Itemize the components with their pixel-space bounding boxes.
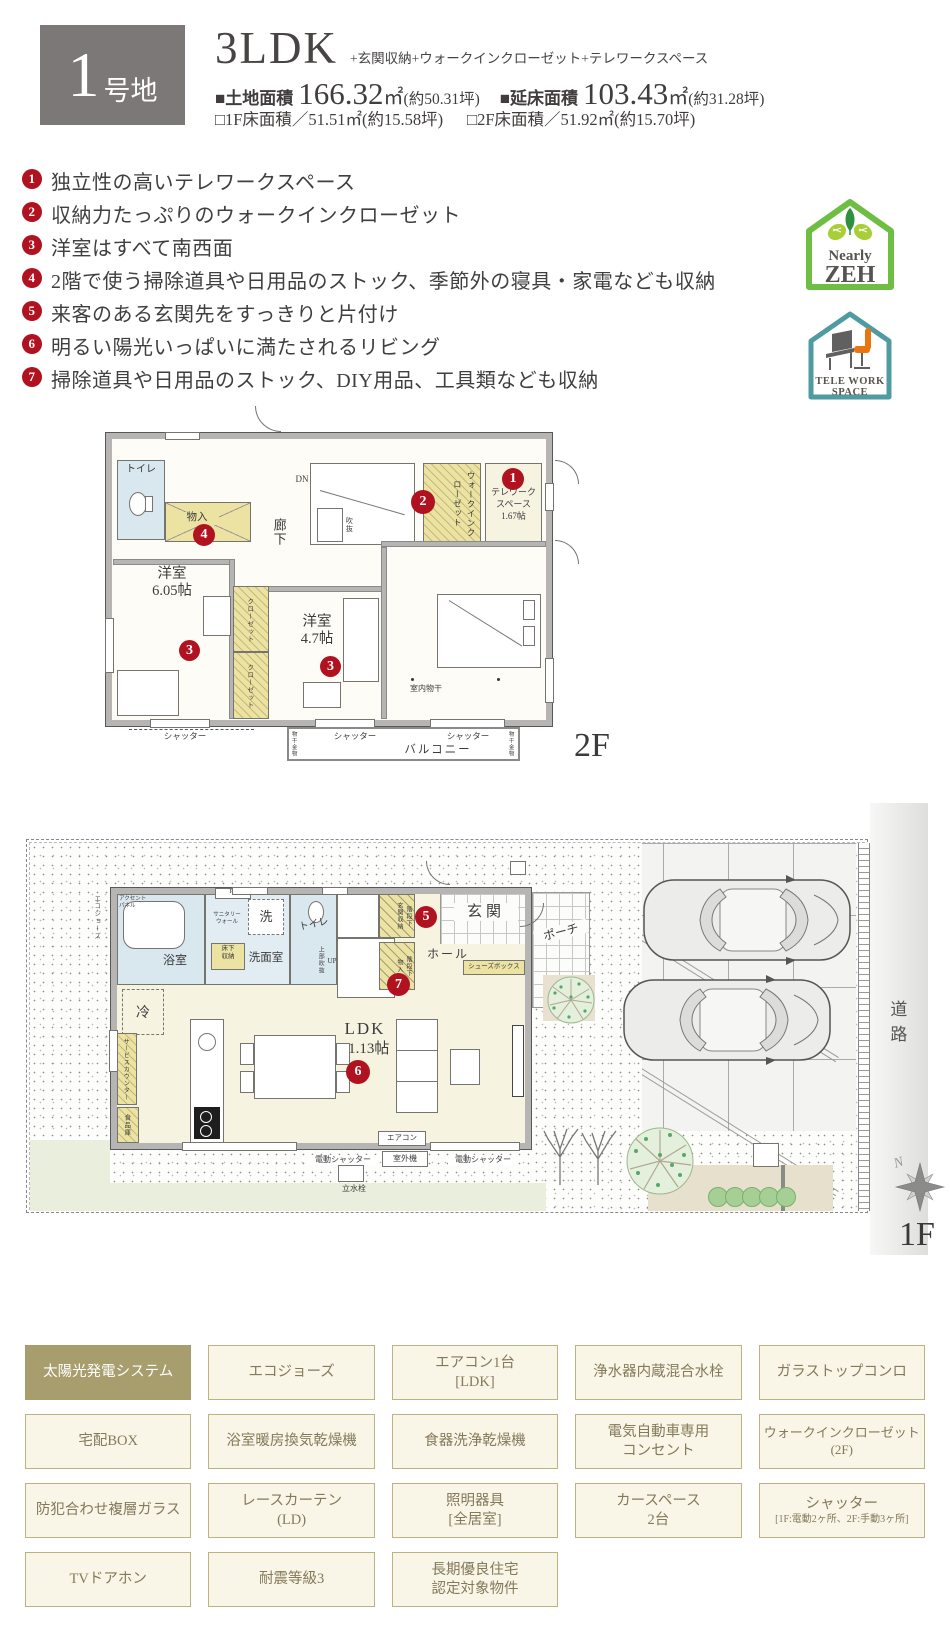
monohoshi-dot-1 [411,678,414,681]
1f-window-left [109,1030,118,1072]
equipment-long-term-housing: 長期優良住宅 認定対象物件 [392,1552,558,1607]
senmen-label: 洗面室 [242,952,290,966]
2f-wic-label: ウォークインクローゼット [429,467,477,541]
nearly-zeh-badge: Nearly ZEH [806,198,894,290]
1f-window-bottom-1 [182,1142,297,1151]
road-label: 道路 [886,980,906,1070]
e-shutter-label-2: 電動シャッター [448,1155,518,1165]
f1-area: □1F床面積／51.51㎡(約15.58坪) [215,106,443,130]
2f-balcony-label: バルコニー [393,744,483,758]
lawn-bottom [30,1183,546,1211]
2f-closet-2-label: クローゼット [245,656,253,716]
1f-window-top-1 [232,887,268,895]
2f-telework-label: テレワーク スペース 1.67帖 [485,486,542,522]
2f-right-door-arc-1 [555,460,579,484]
car-2 [620,973,834,1067]
2f-kanamono-label-1: 物干金物 [290,729,297,759]
genkan-storage-label: 階段下 玄関収納 [382,896,412,936]
service-counter-label: サービスカウンター [121,1035,128,1103]
tap-box [338,1165,364,1182]
up-label: UP [325,957,339,965]
stove-burner-1 [200,1111,212,1123]
feature-item-2: 2収納力たっぷりのウォークインクローゼット [22,199,461,228]
sofa [396,1019,438,1113]
feature-text-4: 2階で使う掃除道具や日用品のストック、季節外の寝具・家電なども収納 [51,265,716,294]
2f-master-pillow-1 [523,600,535,620]
2f-shutter-label-3: シャッター [430,731,506,741]
marker-7: 7 [387,973,410,996]
compass-north-label: N [891,1154,906,1172]
brick-edge [858,843,870,1211]
coffee-table [450,1049,480,1085]
2f-window-right-2 [545,658,554,703]
equipment-water-faucet: 浄水器内蔵混合水栓 [575,1345,741,1400]
marker-3b: 3 [320,656,341,677]
2f-master-pillow-2 [523,626,535,646]
equipment-security-glass: 防犯合わせ複層ガラス [25,1483,191,1538]
feature-text-3: 洋室はすべて南西面 [51,232,233,261]
equipment-lighting: 照明器具 [全居室] [392,1483,558,1538]
2f-floor-label: 2F [557,726,627,767]
meter-box [510,861,526,875]
2f-window-right-1 [545,483,554,511]
ldk-label: LDK [338,1019,392,1039]
trees-bare [540,1117,624,1187]
2f-room2-desk [303,682,341,708]
gate [753,1143,779,1167]
equipment-bath-dryer: 浴室暖房換気乾燥機 [208,1414,374,1469]
shutter-line-left [129,729,254,730]
feature-item-1: 1独立性の高いテレワークスペース [22,166,356,195]
tree-garden [624,1125,696,1197]
2f-hallway-label: 廊下 [271,512,287,552]
pantry-label: 食品庫 [122,1109,130,1141]
2f-room1-bed [117,670,179,716]
kitchen-sink-icon [198,1033,216,1051]
telework-label-1: TELE WORK [815,376,885,387]
feature-num-5: 5 [22,301,42,321]
area-line-2: □1F床面積／51.51㎡(約15.58坪) □2F床面積／51.92㎡(約15… [215,106,695,130]
dining-chair-3 [336,1043,350,1065]
feature-num-1: 1 [22,169,42,189]
2f-window-left [105,618,114,673]
tap-label: 立水栓 [332,1184,376,1194]
equipment-shutter: シャッター [1F:電動2ヶ所、2F:手動3ヶ所] [759,1483,925,1538]
equipment-seismic-grade: 耐震等級3 [208,1552,374,1607]
feature-num-3: 3 [22,235,42,255]
plan-type: 3LDK [215,22,338,74]
equipment-shutter-main: シャッター [806,1495,879,1513]
shoes-label: シューズボックス [463,963,525,971]
feature-text-6: 明るい陽光いっぱいに満たされるリビング [51,331,441,360]
2f-void-label: 吹抜 [345,510,353,540]
tv-board [512,1025,524,1097]
feature-item-3: 3洋室はすべて南西面 [22,232,233,261]
f2-area: □2F床面積／51.92㎡(約15.70坪) [467,106,695,130]
toilet-tank-icon [145,496,153,512]
fridge-label: 冷 [136,1002,150,1022]
equipment-grid: 太陽光発電システム エコジョーズ エアコン1台 [LDK] 浄水器内蔵混合水栓 … [25,1345,925,1607]
2f-closet-1-label: クローゼット [245,590,253,650]
equipment-delivery-box: 宅配BOX [25,1414,191,1469]
header: 1 号地 [40,25,185,125]
equipment-ev-outlet: 電気自動車専用 コンセント [575,1414,741,1469]
dining-chair-1 [240,1043,254,1065]
flyer-page: 1 号地 3LDK +玄関収納+ウォークインクローゼット+テレワークスペース ■… [0,0,950,1642]
equipment-aircon: エアコン1台 [LDK] [392,1345,558,1400]
2f-wall-b [381,541,546,547]
2f-storage-label: 物入 [175,512,219,525]
2f-right-door-arc-2 [555,540,579,564]
equipment-tv-doorphone: TVドアホン [25,1552,191,1607]
ecojozu-label: エコジョーズ [92,891,100,943]
feature-num-6: 6 [22,334,42,354]
2f-shutter-label-2: シャッター [317,731,393,741]
equipment-solar: 太陽光発電システム [25,1345,191,1400]
aircon-label: エアコン [378,1133,426,1142]
floor-plan-2f: トイレ 物入 4 廊下 DN 吹抜 ウォークインクローゼット 2 テレワーク ス… [105,428,635,778]
2f-shutter-label-1: シャッター [147,731,223,741]
2f-window-top-1 [165,432,200,440]
1f-window-top-2 [322,887,348,895]
telework-label-2: SPACE [832,387,868,398]
2f-room1-label: 洋室 6.05帖 [131,566,213,601]
outdoor-unit-label: 室外機 [382,1154,428,1164]
marker-3a: 3 [179,640,200,661]
feature-num-4: 4 [22,268,42,288]
bath-label: 浴室 [153,953,197,967]
equipment-ecojozu: エコジョーズ [208,1345,374,1400]
2f-dn-label: DN [289,474,315,485]
1f-floor-label: 1F [886,1215,948,1256]
stair-void-hatched [337,894,379,938]
marker-5: 5 [415,906,437,928]
dining-chair-2 [240,1071,254,1093]
lot-number: 1 [68,43,100,107]
feature-text-1: 独立性の高いテレワークスペース [51,166,356,195]
equipment-lace-curtain: レースカーテン (LD) [208,1483,374,1538]
plan-type-line: 3LDK +玄関収納+ウォークインクローゼット+テレワークスペース [215,22,708,74]
e-shutter-label-1: 電動シャッター [308,1155,378,1165]
2f-monohoshi-label: 室内物干 [401,684,451,694]
sanitary-label: サニタリー ウォール [206,912,248,925]
feature-item-4: 42階で使う掃除道具や日用品のストック、季節外の寝具・家電なども収納 [22,265,716,294]
stove-burner-2 [200,1125,212,1137]
2f-room2-bed [343,598,379,682]
2f-room1-desk [203,596,231,636]
2f-toilet-label: トイレ [119,464,163,476]
2f-void-box [317,508,343,542]
2f-kanamono-label-2: 物干金物 [507,729,514,759]
equipment-dishwasher: 食器洗浄乾燥機 [392,1414,558,1469]
void-up-label: 上部吹抜 [316,940,323,980]
car-1 [640,873,854,967]
feature-text-2: 収納力たっぷりのウォークインクローゼット [51,199,461,228]
floor-area-tsubo: (約31.28坪) [688,87,764,109]
bushes [708,1187,796,1207]
feature-text-5: 来客のある玄関先をすっきりと片付け [51,298,399,327]
2f-wall-a [113,559,233,565]
feature-num-7: 7 [22,367,42,387]
equipment-wic: ウォークインクローゼット (2F) [759,1414,925,1469]
washer-label: 洗 [248,909,284,925]
marker-2: 2 [411,490,435,514]
genkan-label: 玄関 [454,903,518,921]
feature-num-2: 2 [22,202,42,222]
gravel-left [30,843,110,1140]
feature-item-6: 6明るい陽光いっぱいに満たされるリビング [22,331,441,360]
compass: N [888,1151,946,1215]
equipment-glass-top-stove: ガラストップコンロ [759,1345,925,1400]
lot-suffix: 号地 [104,69,158,108]
telework-space-badge: TELE WORK SPACE [808,310,892,400]
zeh-main-label: ZEH [825,262,876,288]
equipment-shutter-sub: [1F:電動2ヶ所、2F:手動3ヶ所] [775,1514,908,1527]
site-plan-1f: 道路 エコジョーズ アクセント パネル 浴室 PS 洗 サニタリー ウォール 床… [22,795,928,1265]
2f-wall-e [381,547,387,719]
1f-window-bottom-2 [430,1142,520,1151]
marker-6: 6 [346,1060,370,1084]
bush [776,1187,796,1207]
marker-1: 1 [502,468,524,490]
2f-room2-label: 洋室 4.7帖 [285,614,349,649]
2f-window-bottom-1 [150,719,210,728]
yukashita-label: 床下 収納 [211,945,245,961]
plan-extras: +玄関収納+ウォークインクローゼット+テレワークスペース [350,47,708,67]
2f-top-door-arc [255,406,281,432]
fridge: 冷 [122,989,164,1035]
feature-item-5: 5来客のある玄関先をすっきりと片付け [22,298,399,327]
2f-wall-d [267,586,383,592]
bath-accent-label: アクセント パネル [119,896,161,909]
equipment-car-space: カースペース 2台 [575,1483,741,1538]
dining-table [254,1035,336,1099]
marker-4: 4 [193,524,215,546]
tree-porch [545,975,597,1025]
feature-text-7: 掃除道具や日用品のストック、DIY用品、工具類なども収納 [51,364,599,393]
monohoshi-dot-2 [497,678,500,681]
feature-item-7: 7掃除道具や日用品のストック、DIY用品、工具類なども収納 [22,364,599,393]
